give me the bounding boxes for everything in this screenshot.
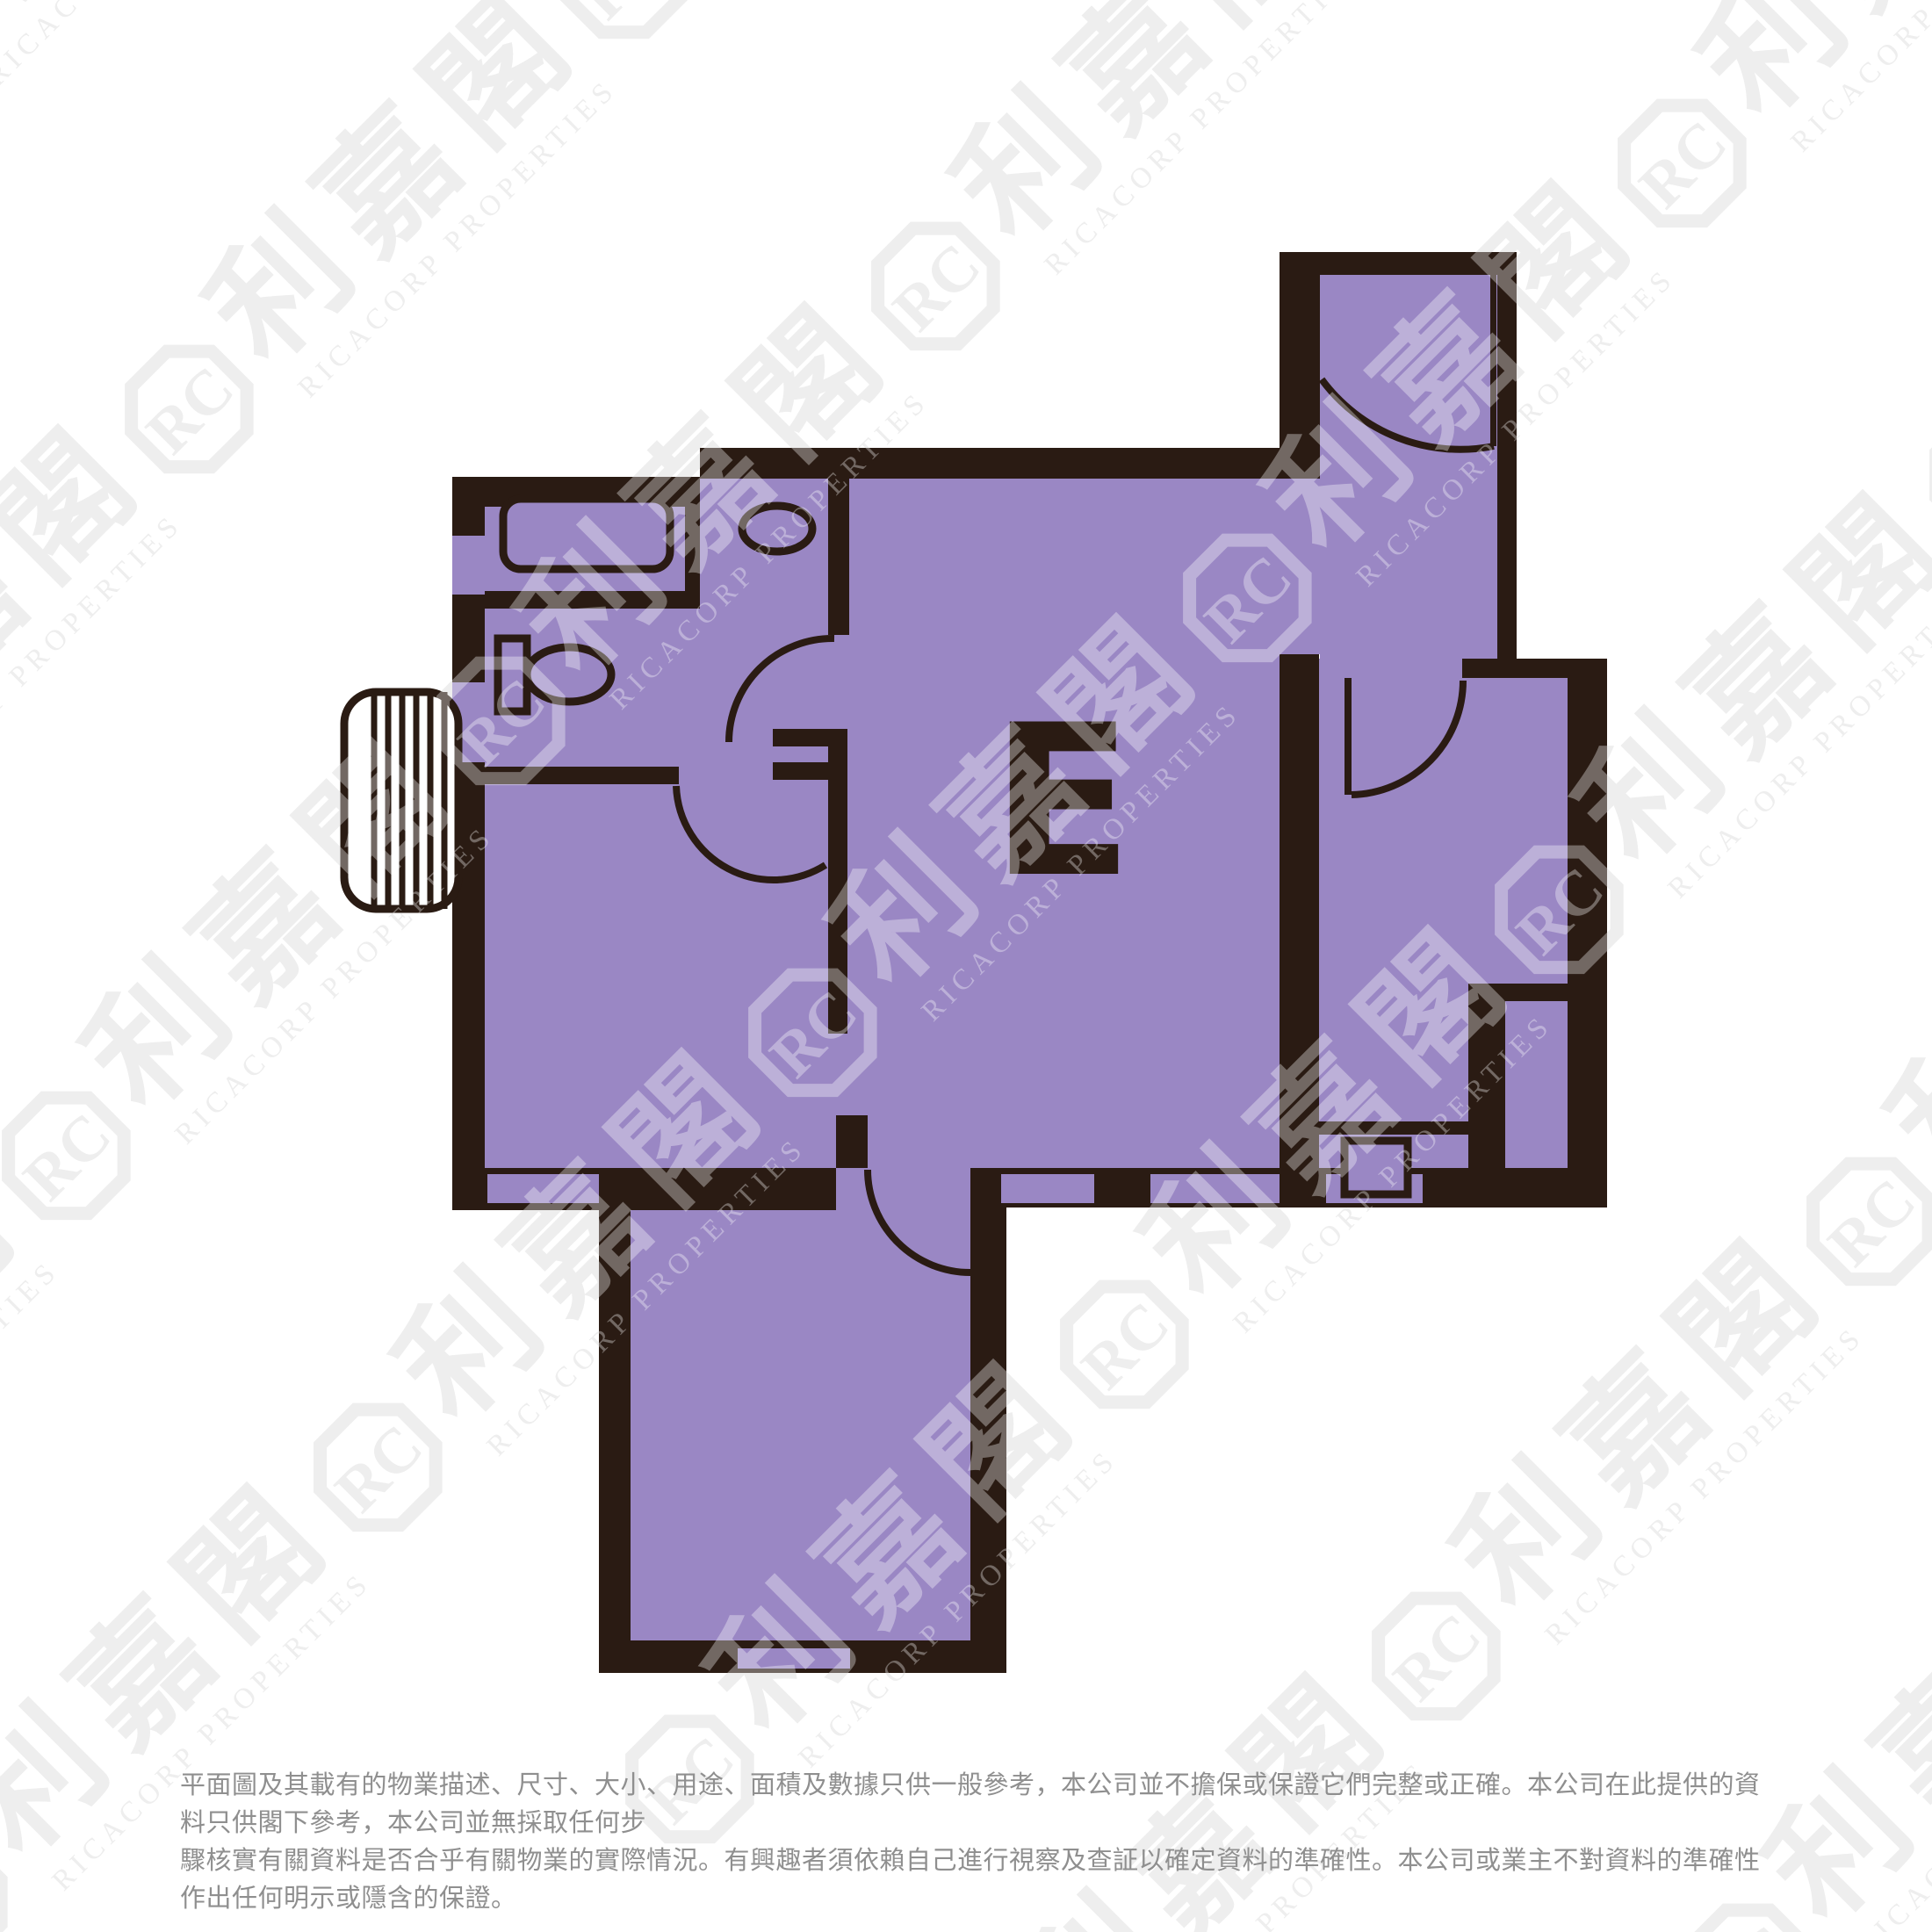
wall-bottomroom-left bbox=[599, 1168, 631, 1673]
wall-kitchen-divider bbox=[1280, 654, 1319, 1207]
disclaimer-zh-line2: 驟核實有關資料是否合乎有關物業的實際情況。有興趣者須依賴自己進行視察及查証以確定… bbox=[180, 1842, 1761, 1918]
wall-door-stub-upper bbox=[773, 729, 828, 746]
wall-bottomroom-right bbox=[970, 1168, 1006, 1673]
wall-bathroom-bottom bbox=[485, 767, 679, 784]
floor-entry-gap bbox=[1280, 458, 1320, 654]
floor-entry-corridor bbox=[1320, 275, 1497, 661]
unit-label: E bbox=[991, 681, 1134, 924]
door-leaf-bedroom-right bbox=[1344, 678, 1352, 795]
window-bathroom-left bbox=[452, 536, 485, 595]
disclaimer: 平面圖及其載有的物業描述、尺寸、大小、用途、面積及數據只供一般參考，本公司並不擔… bbox=[180, 1767, 1761, 1932]
floor-bedroom-left bbox=[485, 784, 828, 1174]
wall-corridor-right bbox=[1497, 252, 1517, 661]
wall-bathtub-right bbox=[685, 477, 700, 591]
wall-closet-partition bbox=[1468, 1001, 1505, 1207]
wall-bedroom-right-top bbox=[1462, 659, 1583, 678]
toilet-bowl bbox=[527, 647, 611, 702]
wall-corridor-left bbox=[1280, 252, 1320, 458]
washing-machine bbox=[1344, 1141, 1408, 1194]
wall-hallway bbox=[828, 780, 847, 1034]
wall-door-stub-join bbox=[828, 729, 847, 780]
disclaimer-zh-line1: 平面圖及其載有的物業描述、尺寸、大小、用途、面積及數據只供一般參考，本公司並不擔… bbox=[180, 1767, 1761, 1842]
floorplan-svg: E bbox=[0, 0, 1932, 1932]
window-living-2 bbox=[1150, 1174, 1280, 1203]
wall-bottomroom-top bbox=[631, 1168, 836, 1210]
wall-door-stub-lower bbox=[773, 762, 828, 780]
wall-right-outer bbox=[1568, 659, 1607, 1207]
window-bedroom-bottom bbox=[487, 1174, 599, 1203]
window-bottomroom bbox=[738, 1648, 850, 1669]
door-leaf-entrance bbox=[1490, 275, 1496, 446]
floorplan-page: RC利嘉閣RICACORP PROPERTIESRC利嘉閣RICACORP PR… bbox=[0, 0, 1932, 1932]
wall-kitchen bbox=[1319, 1121, 1468, 1135]
toilet-tank bbox=[498, 638, 527, 711]
wall-hall-nub bbox=[836, 1115, 868, 1168]
wall-bathtub-bottom bbox=[485, 591, 700, 609]
window-living-1 bbox=[1001, 1174, 1094, 1203]
bathtub bbox=[503, 499, 670, 569]
wall-bathroom-divider bbox=[828, 477, 849, 635]
wall-closet-stub bbox=[1468, 984, 1570, 1001]
floor-bedroom-right bbox=[1319, 659, 1568, 1174]
wall-main-top bbox=[700, 448, 1320, 479]
sink bbox=[742, 506, 812, 551]
floor-bottom-room bbox=[631, 1168, 970, 1640]
